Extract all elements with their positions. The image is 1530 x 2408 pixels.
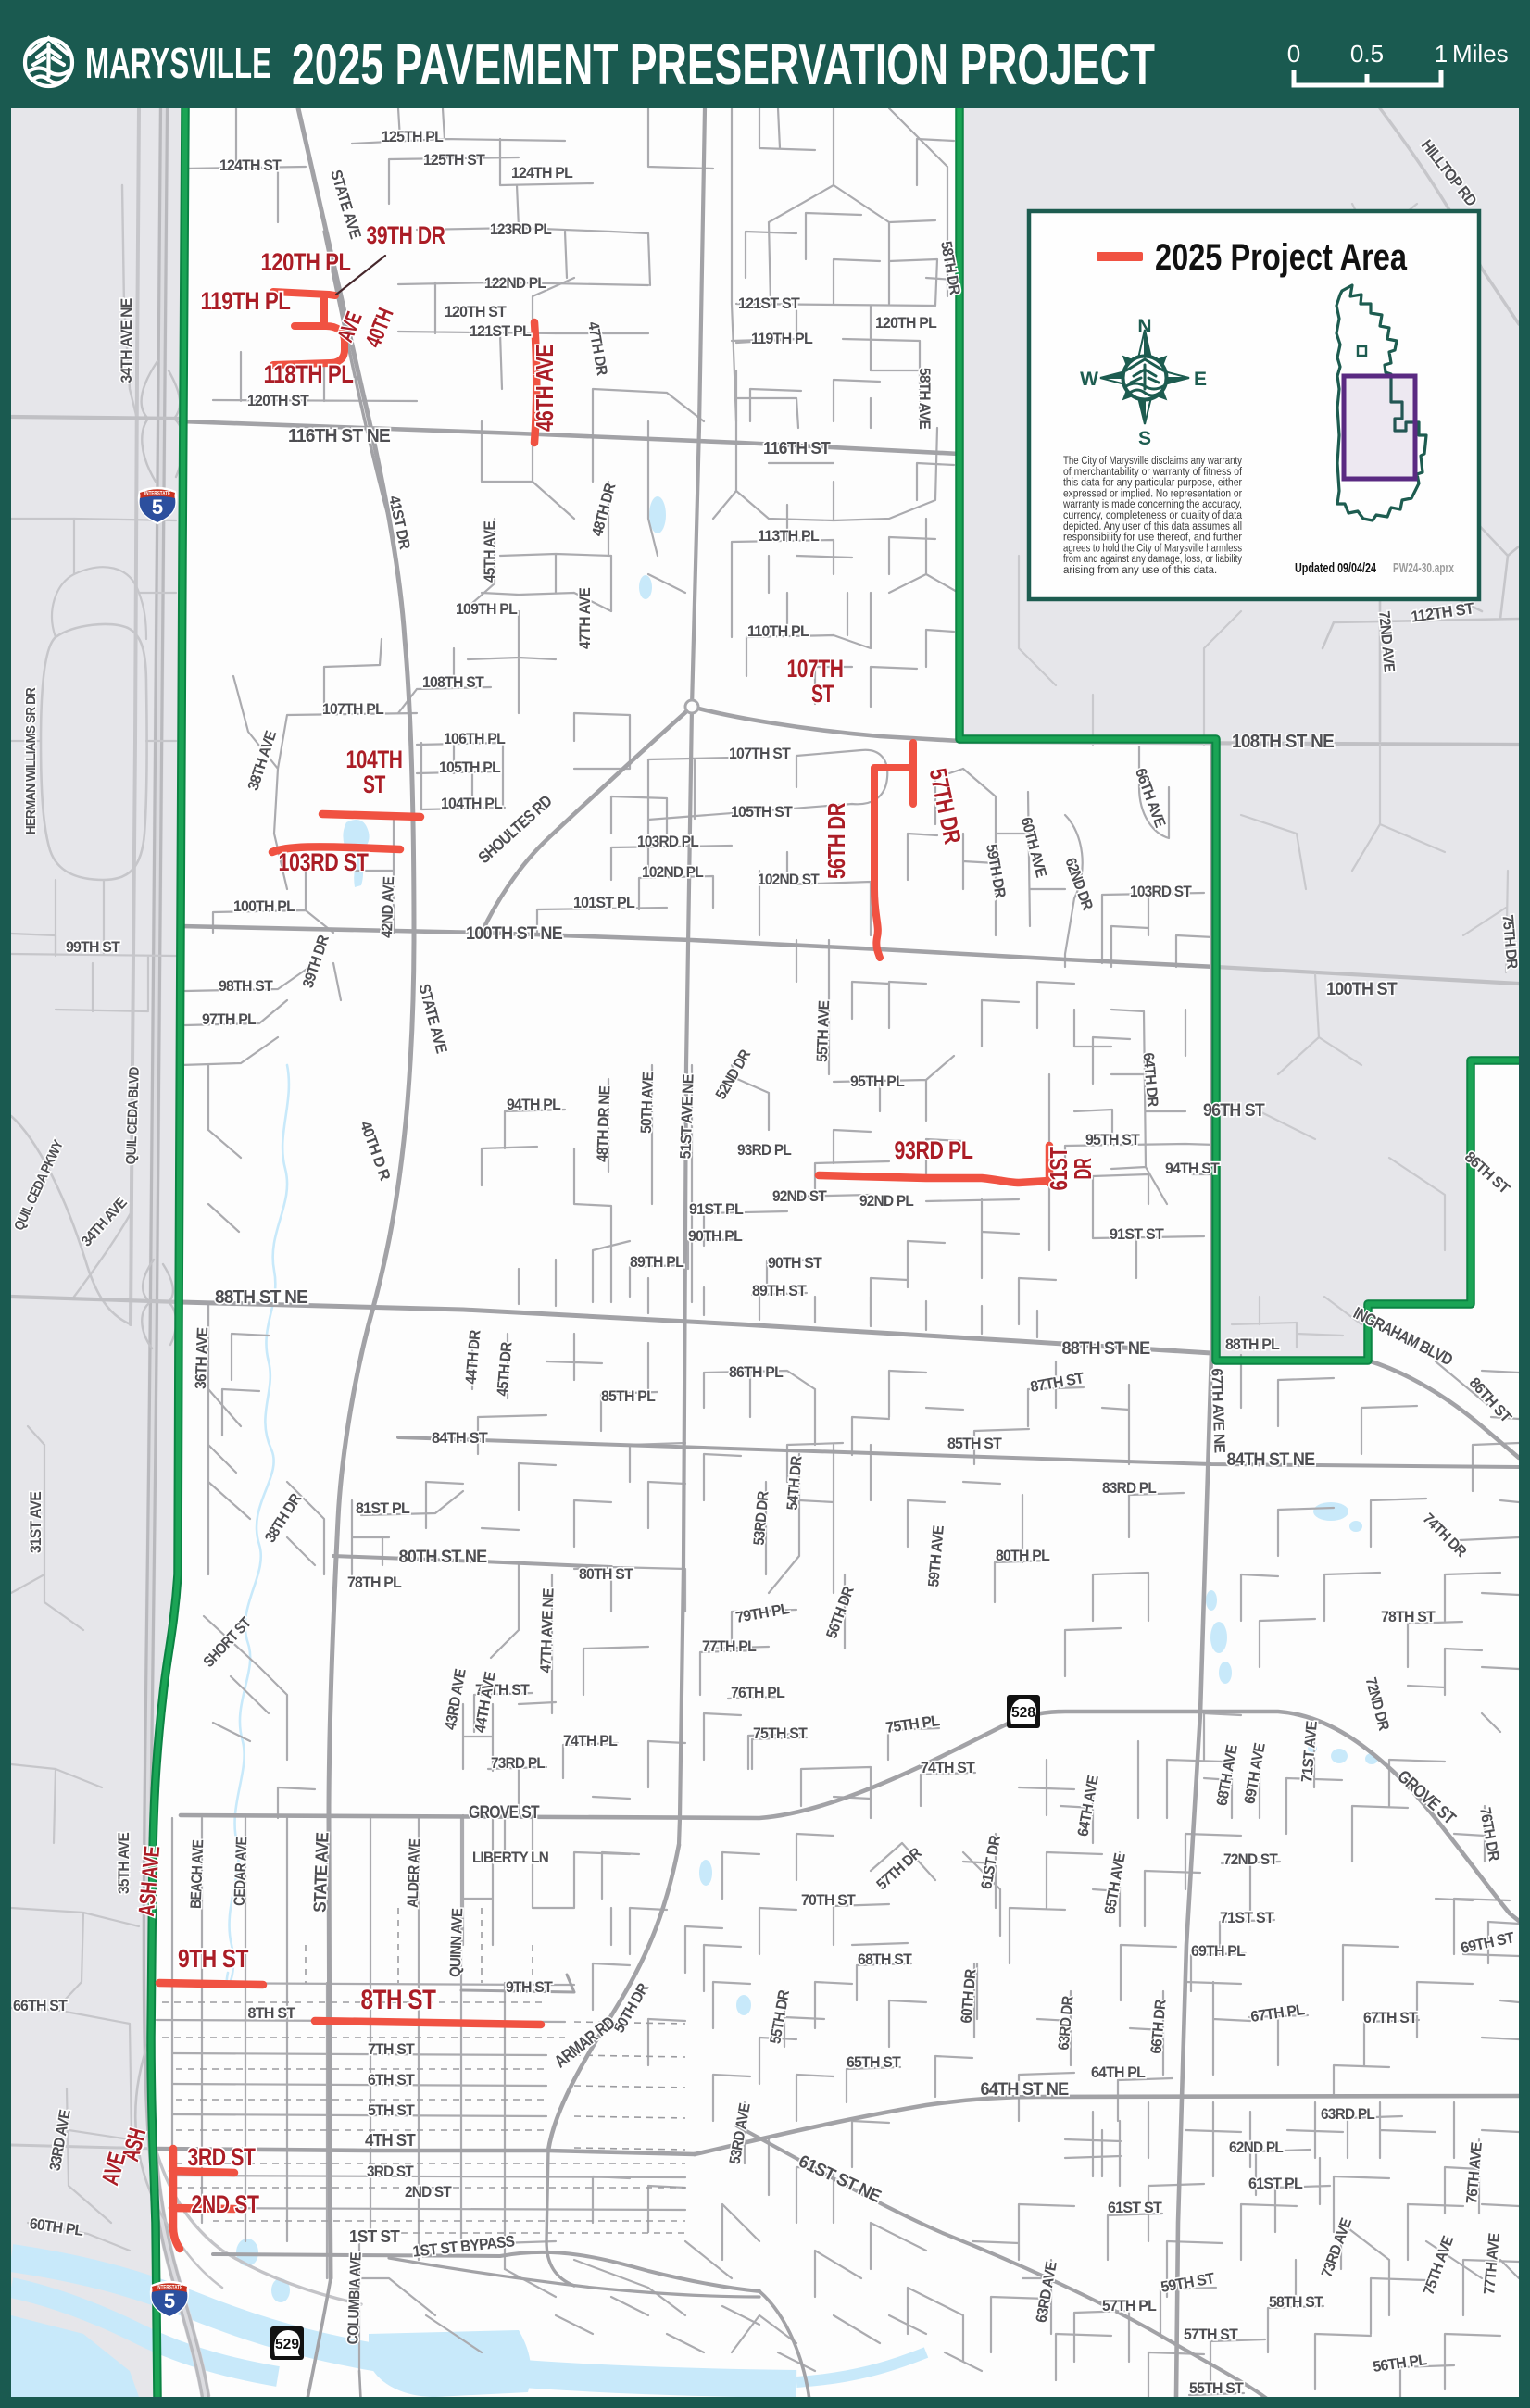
svg-text:84TH ST: 84TH ST <box>432 1429 488 1447</box>
svg-text:47TH AVE: 47TH AVE <box>577 587 594 649</box>
svg-text:PW24-30.aprx: PW24-30.aprx <box>1393 560 1454 576</box>
svg-text:3RD ST: 3RD ST <box>367 2163 414 2180</box>
svg-text:78TH ST: 78TH ST <box>1381 1609 1436 1625</box>
svg-text:arising from any use of this d: arising from any use of this data. <box>1063 565 1217 576</box>
svg-text:99TH ST: 99TH ST <box>66 939 120 956</box>
svg-text:50TH AVE: 50TH AVE <box>638 1072 657 1134</box>
svg-text:GROVE ST: GROVE ST <box>469 1803 540 1823</box>
svg-text:102ND PL: 102ND PL <box>642 864 704 881</box>
svg-text:106TH PL: 106TH PL <box>444 731 506 747</box>
svg-text:56TH DR: 56TH DR <box>822 802 850 879</box>
svg-text:529: 529 <box>275 2337 299 2352</box>
svg-text:75TH ST: 75TH ST <box>753 1725 808 1742</box>
svg-text:94TH PL: 94TH PL <box>507 1097 561 1113</box>
svg-text:E: E <box>1194 369 1207 390</box>
svg-text:39TH DR: 39TH DR <box>367 221 445 249</box>
svg-text:98TH ST: 98TH ST <box>219 978 273 995</box>
svg-text:7TH ST: 7TH ST <box>368 2041 415 2058</box>
svg-text:90TH PL: 90TH PL <box>688 1228 743 1245</box>
svg-text:94TH ST: 94TH ST <box>1165 1160 1220 1177</box>
svg-text:105TH ST: 105TH ST <box>731 804 793 821</box>
svg-text:INTERSTATE: INTERSTATE <box>144 492 170 497</box>
svg-text:Updated 09/04/24: Updated 09/04/24 <box>1295 560 1376 576</box>
svg-text:85TH ST: 85TH ST <box>947 1436 1002 1452</box>
svg-text:1: 1 <box>1435 40 1448 68</box>
svg-text:61ST ST: 61ST ST <box>1108 2200 1162 2216</box>
svg-text:0: 0 <box>1287 40 1300 68</box>
svg-text:89TH PL: 89TH PL <box>630 1254 684 1271</box>
svg-text:63RD PL: 63RD PL <box>1321 2106 1375 2123</box>
svg-text:this data for any particular p: this data for any particular purpose, ei… <box>1063 478 1242 489</box>
svg-text:120TH PL: 120TH PL <box>875 315 937 332</box>
svg-text:6TH ST: 6TH ST <box>368 2072 415 2088</box>
svg-text:ALDER AVE: ALDER AVE <box>405 1838 424 1908</box>
svg-text:0.5: 0.5 <box>1350 40 1384 68</box>
svg-text:90TH ST: 90TH ST <box>768 1255 822 1272</box>
svg-text:119TH PL: 119TH PL <box>201 287 291 315</box>
svg-text:118TH PL: 118TH PL <box>264 360 354 388</box>
svg-text:expressed or implied. No repre: expressed or implied. No representation … <box>1063 488 1242 499</box>
svg-text:97TH PL: 97TH PL <box>202 1011 257 1028</box>
svg-text:68TH ST: 68TH ST <box>858 1951 912 1968</box>
svg-text:3RD ST: 3RD ST <box>188 2143 257 2171</box>
svg-text:80TH PL: 80TH PL <box>996 1548 1050 1564</box>
svg-text:125TH ST: 125TH ST <box>423 152 485 169</box>
svg-text:STATE AVE: STATE AVE <box>311 1832 333 1913</box>
svg-text:85TH PL: 85TH PL <box>601 1388 656 1405</box>
svg-text:88TH ST NE: 88TH ST NE <box>215 1287 307 1308</box>
svg-text:81ST PL: 81ST PL <box>356 1500 410 1517</box>
svg-text:2ND ST: 2ND ST <box>405 2184 452 2201</box>
svg-text:121ST PL: 121ST PL <box>470 323 532 340</box>
svg-text:COLUMBIA AVE: COLUMBIA AVE <box>345 2251 364 2344</box>
svg-text:80TH ST NE: 80TH ST NE <box>399 1548 487 1567</box>
svg-text:67TH ST: 67TH ST <box>1363 2010 1418 2026</box>
svg-text:96TH ST: 96TH ST <box>1203 1101 1265 1121</box>
svg-text:INTERSTATE: INTERSTATE <box>157 2286 182 2291</box>
svg-text:2ND ST: 2ND ST <box>192 2190 260 2218</box>
svg-text:74TH PL: 74TH PL <box>563 1733 618 1750</box>
svg-text:109TH PL: 109TH PL <box>456 601 518 618</box>
svg-text:108TH ST: 108TH ST <box>422 674 484 691</box>
svg-text:64TH PL: 64TH PL <box>1091 2064 1146 2081</box>
svg-text:120TH PL: 120TH PL <box>261 248 351 276</box>
svg-text:DR: DR <box>1069 1158 1097 1179</box>
svg-text:124TH PL: 124TH PL <box>511 165 573 182</box>
svg-text:93RD PL: 93RD PL <box>895 1136 973 1164</box>
svg-text:92ND ST: 92ND ST <box>772 1188 827 1205</box>
svg-text:The City of Marysville disclai: The City of Marysville disclaims any war… <box>1063 456 1242 467</box>
svg-text:100TH ST: 100TH ST <box>1326 980 1398 999</box>
svg-text:9TH ST: 9TH ST <box>178 1944 248 1973</box>
svg-text:86TH PL: 86TH PL <box>729 1364 784 1381</box>
svg-text:58TH ST: 58TH ST <box>1269 2294 1323 2311</box>
svg-text:currency, completeness or qual: currency, completeness or quality of dat… <box>1063 510 1243 521</box>
svg-text:67TH AVE NE: 67TH AVE NE <box>1208 1368 1227 1453</box>
svg-text:62ND PL: 62ND PL <box>1229 2139 1284 2156</box>
svg-text:CEDAR AVE: CEDAR AVE <box>232 1837 251 1906</box>
svg-text:91ST PL: 91ST PL <box>689 1201 744 1218</box>
svg-text:35TH AVE: 35TH AVE <box>116 1832 132 1894</box>
svg-text:BEACH AVE: BEACH AVE <box>188 1839 207 1909</box>
svg-text:116TH ST NE: 116TH ST NE <box>288 426 390 446</box>
svg-text:2025 PAVEMENT PRESERVATION PRO: 2025 PAVEMENT PRESERVATION PROJECT <box>292 33 1155 97</box>
svg-text:69TH PL: 69TH PL <box>1191 1943 1246 1960</box>
svg-text:46TH AVE: 46TH AVE <box>531 345 558 432</box>
svg-text:64TH ST NE: 64TH ST NE <box>981 2080 1069 2100</box>
svg-text:116TH ST: 116TH ST <box>763 439 831 458</box>
svg-text:2025 Project Area: 2025 Project Area <box>1155 237 1408 278</box>
svg-text:107TH: 107TH <box>787 655 844 683</box>
svg-text:responsibility for use thereof: responsibility for use thereof, and furt… <box>1063 533 1242 544</box>
svg-text:103RD ST: 103RD ST <box>279 848 370 876</box>
svg-text:78TH PL: 78TH PL <box>347 1574 402 1591</box>
svg-text:34TH AVE NE: 34TH AVE NE <box>119 298 135 383</box>
svg-text:91ST ST: 91ST ST <box>1110 1226 1164 1243</box>
svg-text:93RD PL: 93RD PL <box>737 1142 792 1159</box>
svg-text:83RD PL: 83RD PL <box>1102 1480 1157 1497</box>
svg-text:76TH PL: 76TH PL <box>731 1685 785 1701</box>
svg-text:100TH PL: 100TH PL <box>233 898 295 915</box>
svg-text:88TH PL: 88TH PL <box>1225 1336 1280 1353</box>
svg-text:agrees to hold the City of Mar: agrees to hold the City of Marysville ha… <box>1063 543 1242 554</box>
svg-text:66TH ST: 66TH ST <box>13 1998 68 2014</box>
svg-text:warranty is made concerning th: warranty is made concerning the accuracy… <box>1062 499 1242 510</box>
svg-text:74TH ST: 74TH ST <box>921 1760 975 1776</box>
svg-text:1ST ST: 1ST ST <box>349 2227 400 2246</box>
svg-text:8TH ST: 8TH ST <box>361 1985 436 2015</box>
svg-text:LIBERTY LN: LIBERTY LN <box>472 1850 548 1866</box>
svg-text:of merchantability or warranty: of merchantability or warranty of fitnes… <box>1063 467 1243 478</box>
svg-text:110TH PL: 110TH PL <box>747 623 809 640</box>
svg-text:123RD PL: 123RD PL <box>490 221 552 238</box>
svg-text:36TH AVE: 36TH AVE <box>193 1327 211 1389</box>
svg-text:107TH ST: 107TH ST <box>729 746 791 762</box>
svg-text:4TH ST: 4TH ST <box>365 2131 416 2150</box>
svg-text:57TH PL: 57TH PL <box>1102 2298 1157 2314</box>
svg-text:92ND PL: 92ND PL <box>859 1193 914 1210</box>
svg-text:101ST PL: 101ST PL <box>573 895 635 911</box>
svg-text:528: 528 <box>1011 1705 1035 1721</box>
svg-text:42ND AVE: 42ND AVE <box>379 876 397 938</box>
svg-text:48TH DR NE: 48TH DR NE <box>595 1085 614 1162</box>
svg-text:120TH ST: 120TH ST <box>247 393 309 409</box>
svg-text:113TH PL: 113TH PL <box>758 528 820 545</box>
svg-text:80TH ST: 80TH ST <box>579 1566 633 1583</box>
svg-text:102ND ST: 102ND ST <box>758 872 820 888</box>
svg-text:88TH ST NE: 88TH ST NE <box>1062 1339 1150 1359</box>
svg-text:120TH ST: 120TH ST <box>445 304 507 320</box>
svg-text:5: 5 <box>164 2289 175 2313</box>
svg-text:104TH PL: 104TH PL <box>441 796 503 812</box>
svg-text:105TH PL: 105TH PL <box>439 759 501 776</box>
svg-text:N: N <box>1137 316 1151 337</box>
svg-text:108TH ST NE: 108TH ST NE <box>1232 732 1334 752</box>
svg-text:depicted. Any user of this dat: depicted. Any user of this data assumes … <box>1063 521 1242 533</box>
svg-text:5TH ST: 5TH ST <box>368 2102 415 2119</box>
svg-text:95TH ST: 95TH ST <box>1085 1132 1140 1148</box>
svg-text:121ST ST: 121ST ST <box>738 295 800 312</box>
svg-text:73RD PL: 73RD PL <box>491 1755 546 1772</box>
svg-text:95TH PL: 95TH PL <box>850 1073 905 1090</box>
svg-text:103RD PL: 103RD PL <box>637 834 699 850</box>
svg-text:S: S <box>1138 428 1151 449</box>
svg-text:QUINN AVE: QUINN AVE <box>447 1908 467 1977</box>
svg-text:124TH ST: 124TH ST <box>219 157 282 174</box>
svg-text:84TH ST NE: 84TH ST NE <box>1227 1450 1315 1470</box>
svg-text:103RD ST: 103RD ST <box>1130 884 1192 900</box>
svg-text:71ST ST: 71ST ST <box>1220 1910 1274 1926</box>
svg-text:55TH ST: 55TH ST <box>1189 2380 1244 2397</box>
svg-text:45TH AVE: 45TH AVE <box>482 520 498 583</box>
svg-text:122ND PL: 122ND PL <box>484 275 546 292</box>
svg-text:Miles: Miles <box>1452 40 1509 68</box>
svg-text:31ST AVE: 31ST AVE <box>28 1491 44 1553</box>
svg-text:9TH ST: 9TH ST <box>506 1979 553 1996</box>
svg-text:from and against any damage, l: from and against any damage, loss, or li… <box>1063 554 1242 565</box>
svg-text:89TH ST: 89TH ST <box>752 1283 807 1299</box>
svg-text:70TH ST: 70TH ST <box>801 1892 856 1909</box>
svg-text:104TH: 104TH <box>346 746 403 773</box>
svg-text:57TH ST: 57TH ST <box>1184 2326 1238 2343</box>
svg-text:ST: ST <box>363 771 386 798</box>
svg-text:51ST AVE NE: 51ST AVE NE <box>677 1073 696 1159</box>
svg-text:8TH ST: 8TH ST <box>248 2004 296 2022</box>
svg-text:65TH ST: 65TH ST <box>847 2054 901 2071</box>
svg-text:58TH AVE: 58TH AVE <box>916 368 933 430</box>
svg-text:HERMAN WILLIAMS SR DR: HERMAN WILLIAMS SR DR <box>23 687 39 834</box>
svg-text:ST: ST <box>811 680 834 708</box>
svg-text:55TH AVE: 55TH AVE <box>814 1000 833 1062</box>
svg-text:W: W <box>1080 369 1098 390</box>
svg-text:100TH ST NE: 100TH ST NE <box>466 924 562 944</box>
svg-text:77TH PL: 77TH PL <box>702 1638 757 1655</box>
svg-text:72ND ST: 72ND ST <box>1223 1851 1278 1868</box>
svg-text:5: 5 <box>152 495 163 519</box>
svg-text:125TH PL: 125TH PL <box>382 129 444 145</box>
svg-text:107TH PL: 107TH PL <box>322 701 384 718</box>
svg-text:119TH PL: 119TH PL <box>751 331 813 347</box>
svg-text:61ST PL: 61ST PL <box>1248 2176 1303 2192</box>
svg-text:47TH AVE NE: 47TH AVE NE <box>537 1587 557 1673</box>
svg-text:MARYSVILLE: MARYSVILLE <box>85 39 271 87</box>
